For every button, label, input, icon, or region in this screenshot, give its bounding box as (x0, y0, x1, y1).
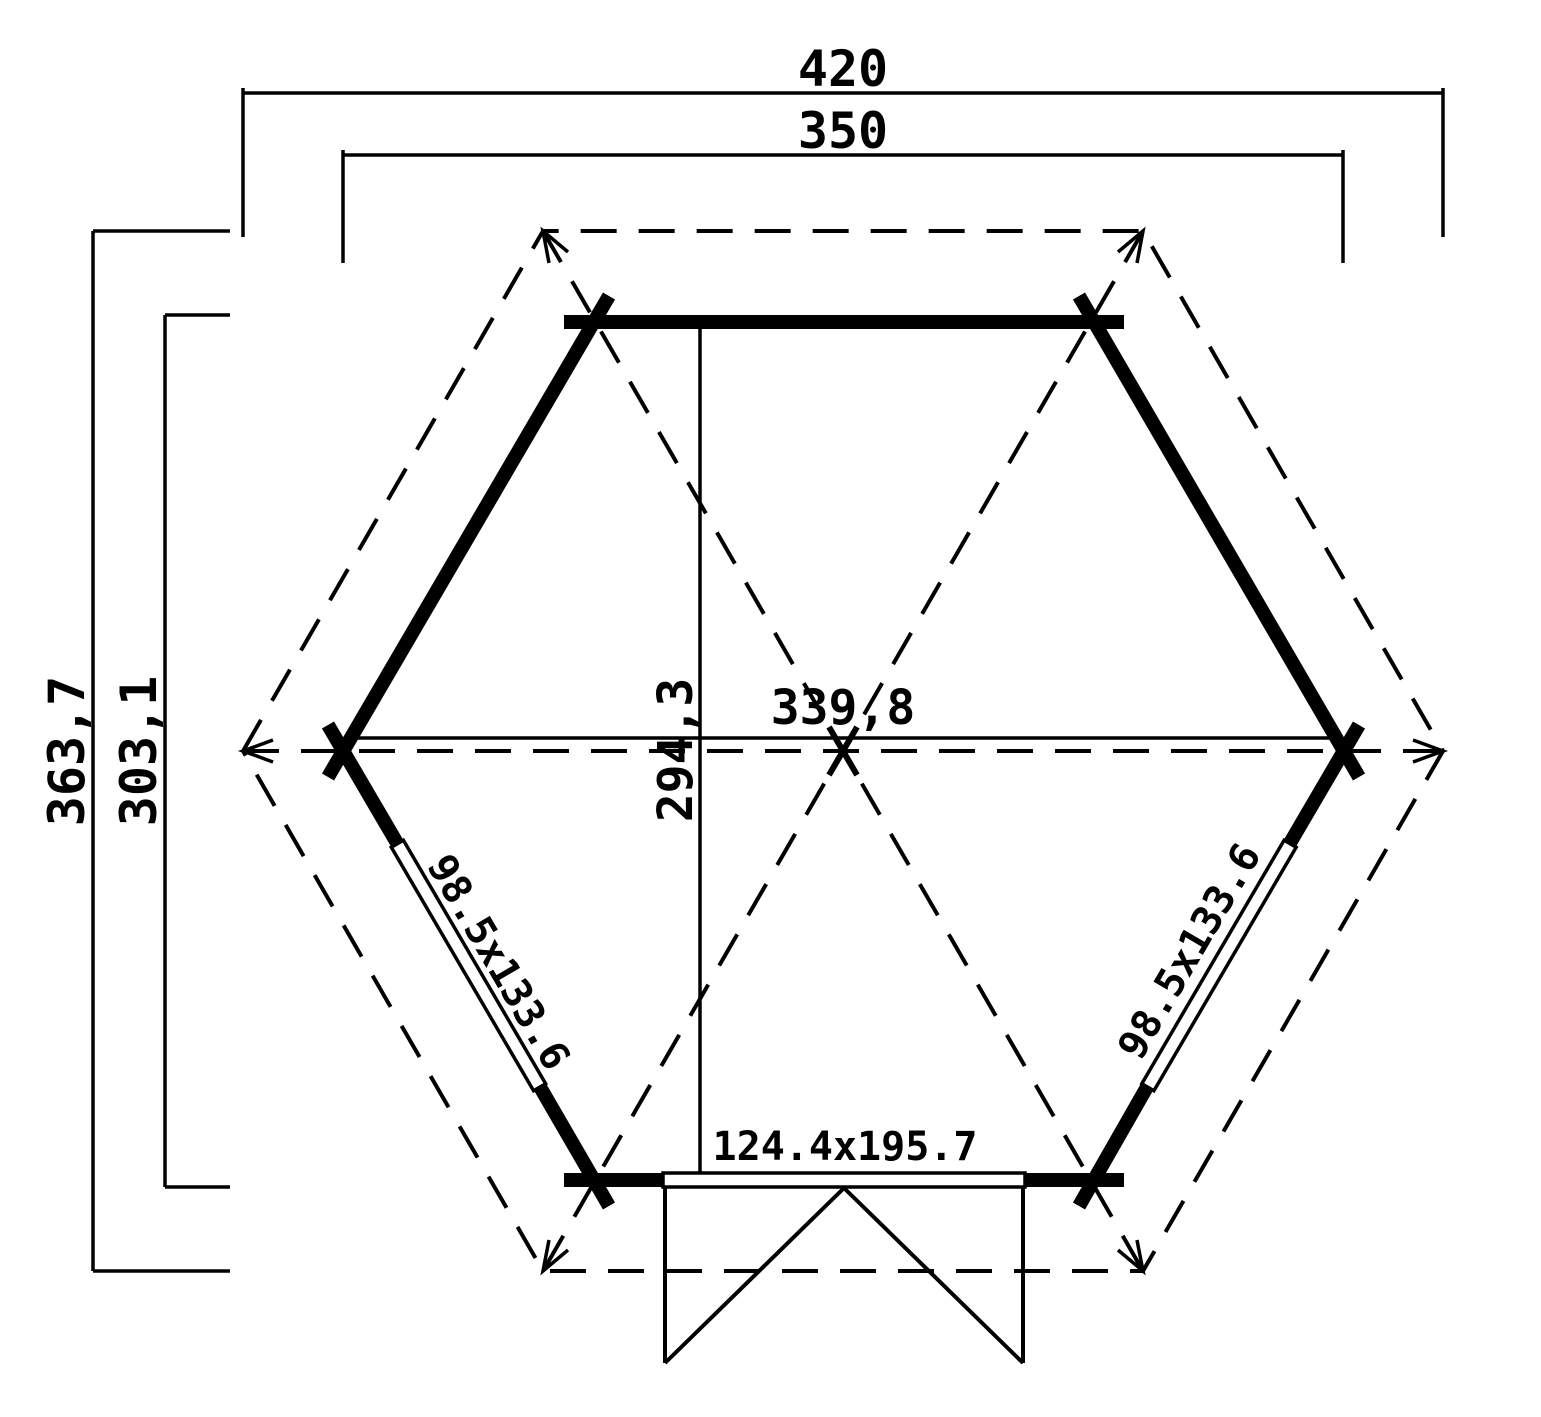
wall-lower-left-lower-segment (540, 1087, 609, 1206)
wall-lower-right-upper-segment (1290, 725, 1359, 843)
wall-lower-left-upper-segment (328, 725, 397, 843)
floor-plan-canvas: 420 350 363,7 303,1 294,3 339,8 98.5x133… (0, 0, 1541, 1417)
arrowhead-topright-corner-icon (1118, 231, 1143, 263)
dim-roof-width-label: 420 (798, 40, 888, 98)
wall-upper-left (328, 296, 609, 777)
gazebo-floor-plan: 420 350 363,7 303,1 294,3 339,8 98.5x133… (0, 0, 1541, 1417)
wall-upper-right (1079, 296, 1359, 777)
dim-inner-depth-label: 294,3 (648, 678, 704, 823)
arrowhead-bottomleft-corner-icon (543, 1240, 568, 1271)
door-frame (663, 1173, 1025, 1187)
dim-inner-width-label: 339,8 (771, 680, 916, 736)
arrowhead-bottomright-corner-icon (1118, 1240, 1143, 1271)
wall-lower-right-lower-segment (1079, 1087, 1147, 1206)
door-leaf-left-swing (665, 1188, 844, 1363)
dim-wall-depth-label: 303,1 (110, 676, 168, 827)
door-leaf-right-swing (844, 1188, 1023, 1363)
arrowhead-topleft-corner-icon (543, 231, 568, 263)
window-left-size-label: 98.5x133.6 (418, 847, 579, 1078)
dim-wall-width-label: 350 (798, 102, 888, 160)
door-size-label: 124.4x195.7 (713, 1124, 978, 1170)
dim-roof-depth-label: 363,7 (38, 676, 96, 827)
